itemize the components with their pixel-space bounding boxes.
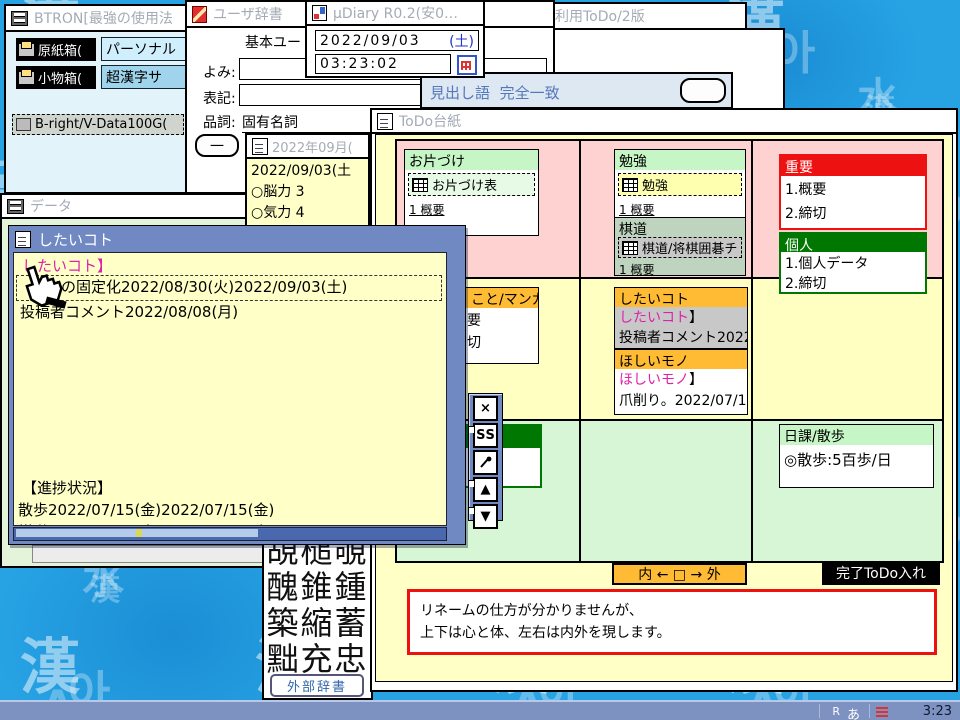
todo-box-okatazuke: お片づけ お片づけ表 1 概要: [404, 149, 539, 236]
paper-tray-icon: [18, 43, 35, 57]
genshibako-label: 原紙箱(: [38, 40, 82, 59]
todo-box-kido: 棋道 棋道/将棋囲碁チ 1 概要: [614, 217, 746, 276]
window-btron-title: BTRON[最強の使用法: [34, 8, 173, 28]
progress-heading: 【進捗状況】: [22, 477, 112, 498]
benkyo-header: 勉強: [615, 150, 745, 170]
okatazuke-header: お片づけ: [405, 150, 538, 170]
date-value: 2022/09/03: [320, 33, 421, 49]
window-data-title: データ: [30, 196, 72, 216]
save-icon[interactable]: SS: [473, 423, 498, 448]
headword-label: 見出し語: [430, 84, 490, 102]
udiary-icon: [312, 5, 327, 21]
shitai-cell-line2: 投稿者コメント2022: [619, 328, 743, 348]
menu-icon[interactable]: [876, 707, 888, 717]
shitai-selected-item[interactable]: ードの固定化2022/08/30(火)2022/09/03(土): [16, 275, 442, 301]
chokanji-label: 超漢字サ: [106, 67, 162, 87]
todo-box-shitai-koto: したいコト したいコト】 投稿者コメント2022: [614, 287, 748, 349]
scroll-down-icon[interactable]: ▼: [473, 504, 498, 529]
hyoki-label: 表記:: [203, 88, 236, 108]
weekday-value: (土): [449, 31, 474, 51]
scrollbar-thumb[interactable]: [142, 529, 258, 537]
shitai-side-toolbar: × SS ▲ ▼: [468, 393, 503, 521]
yomi-label: よみ:: [203, 62, 236, 82]
window-shitai-titlebar[interactable]: したいコト: [9, 226, 465, 252]
progress-line: 散歩2022/07/15(金)2022/07/15(金): [18, 499, 274, 520]
kojin-line: 1.個人データ: [785, 254, 921, 274]
kojin-header: 個人: [781, 234, 925, 252]
corner-mark: [468, 426, 474, 433]
red-book-icon: [192, 6, 207, 23]
cabinet-icon: [7, 199, 24, 214]
done-todo-button[interactable]: 完了ToDo入れ: [822, 561, 940, 585]
kido-header: 棋道: [615, 218, 745, 236]
window-todo-board-title: ToDo台紙: [399, 111, 461, 131]
sheet-icon: [622, 178, 638, 192]
external-dict-label: 外部辞書: [287, 676, 347, 695]
hoshii-line2: 爪削り。2022/07/17: [619, 391, 743, 412]
koto-manga-line: 切: [467, 332, 534, 354]
kido-item-label: 棋道/将棋囲碁チ: [642, 238, 737, 257]
time-field[interactable]: 03:23:02: [315, 54, 451, 74]
shitai-heading: したいコト】: [22, 255, 112, 276]
close-icon[interactable]: ×: [473, 396, 498, 421]
hoshii-header: ほしいモノ: [615, 350, 747, 369]
window-shitai-koto: したいコト したいコト】 ードの固定化2022/08/30(火)2022/09/…: [8, 225, 466, 545]
window-btron: BTRON[最強の使用法 原紙箱( パーソナル 小物箱( 超漢字サ B-righ…: [4, 4, 187, 194]
okatazuke-item[interactable]: お片づけ表: [408, 173, 535, 196]
progress-line: 棋道2022/07/15(金)2022/07/15(金): [18, 521, 274, 526]
match-mode-label: 完全一致: [500, 84, 560, 102]
grid-divider: [579, 141, 581, 561]
komonobako-label: 小物箱(: [38, 68, 82, 87]
ime-mode-indicator[interactable]: R: [832, 705, 840, 718]
hoshii-line1: ほしいモノ】: [619, 370, 743, 391]
juyo-line: 2.締切: [785, 202, 921, 226]
okatazuke-item-label: お片づけ表: [432, 175, 497, 194]
pin-icon[interactable]: [473, 450, 498, 475]
date-field[interactable]: 2022/09/03 (土): [315, 30, 479, 51]
shitai-horizontal-scrollbar[interactable]: [13, 527, 447, 541]
kido-item[interactable]: 棋道/将棋囲碁チ: [618, 237, 742, 258]
time-value: 03:23:02: [320, 56, 399, 72]
cabinet-icon: [11, 11, 28, 26]
document-icon: [15, 231, 31, 248]
sheet-icon: [412, 178, 428, 192]
done-todo-label: 完了ToDo入れ: [836, 563, 926, 583]
taskbar: R あ 3:23: [0, 700, 960, 720]
kido-sub[interactable]: 1 概要: [615, 259, 745, 276]
window-todo-board-titlebar[interactable]: ToDo台紙: [372, 110, 956, 134]
todo-box-nikka-sanpo: 日課/散歩 ◎散歩:5百歩/日: [779, 424, 934, 488]
ime-kana-indicator[interactable]: あ: [847, 704, 860, 720]
benkyo-item[interactable]: 勉強: [618, 173, 742, 196]
kojin-line: 2.締切: [785, 274, 921, 294]
document-icon: [252, 138, 268, 155]
diary-line: 2022/09/03(土: [251, 161, 364, 182]
ichi-button[interactable]: 一: [195, 134, 239, 157]
inner-outer-label: 内 ← □ → 外: [638, 564, 721, 584]
scroll-up-icon[interactable]: ▲: [473, 477, 498, 502]
desktop: 漢아A水漢漢아A水漢漢아A水漢漢아A水漢漢아A水漢漢아A水漢漢아A水漢漢아A水漢…: [0, 0, 960, 720]
inner-outer-button[interactable]: 内 ← □ → 外: [612, 563, 747, 585]
benkyo-item-label: 勉強: [642, 175, 668, 194]
clock: 3:23: [923, 704, 952, 719]
board-message-line: リネームの仕方が分かりませんが、: [420, 600, 924, 622]
hinshi-label: 品詞:: [203, 112, 236, 132]
taskbar-divider: [869, 704, 870, 718]
window-udiary-titlebar[interactable]: μDiary R0.2(安0…: [307, 2, 483, 26]
board-message-box: リネームの仕方が分かりませんが、 上下は心と体、左右は内外を現します。: [407, 589, 937, 655]
todo-box-kojin: 個人 1.個人データ 2.締切: [779, 232, 927, 294]
juyo-line: 1.概要: [785, 178, 921, 202]
search-button[interactable]: [680, 78, 726, 103]
shitai-cell-line1: したいコト】: [619, 308, 743, 328]
diary-line: ○脳力 3: [251, 182, 364, 203]
shitai-cell-header: したいコト: [615, 288, 747, 307]
window-month-diary-title: 2022年09月(: [272, 137, 353, 156]
search-bar-text: 見出し語 完全一致: [430, 82, 560, 103]
shitai-content: したいコト】 ードの固定化2022/08/30(火)2022/09/03(土) …: [13, 252, 447, 526]
juyo-header: 重要: [781, 156, 925, 176]
external-dict-button[interactable]: 外部辞書: [270, 674, 364, 697]
todo-box-hoshii-mono: ほしいモノ ほしいモノ】 爪削り。2022/07/17: [614, 349, 748, 415]
window-user-dict-title: ユーザ辞書: [213, 4, 283, 24]
window-month-diary-titlebar[interactable]: 2022年09月(: [247, 135, 368, 159]
chokanji-item[interactable]: 超漢字サ: [101, 65, 187, 89]
window-udiary: μDiary R0.2(安0… 2022/09/03 (土) 03:23:02: [305, 0, 485, 78]
nikka-line: ◎散歩:5百歩/日: [780, 445, 933, 472]
disk-icon: [16, 118, 31, 131]
todo-box-juyo: 重要 1.概要 2.締切: [779, 154, 927, 230]
corner-mark: [468, 507, 474, 514]
personal-label: パーソナル: [106, 39, 176, 59]
nikka-header: 日課/散歩: [780, 425, 933, 445]
small-box-icon: [18, 71, 35, 85]
window-month-diary: 2022年09月( 2022/09/03(土 ○脳力 3 ○気力 4: [245, 133, 370, 233]
window-udiary-title: μDiary R0.2(安0…: [333, 3, 458, 23]
ichi-button-label: 一: [210, 136, 224, 156]
sheet-icon: [622, 241, 638, 255]
bright-data-label: B-right/V-Data100G(: [35, 117, 167, 132]
calendar-grid-icon[interactable]: [457, 55, 477, 75]
koto-manga-line: 要: [467, 310, 534, 332]
document-icon: [377, 113, 393, 130]
okatazuke-sub[interactable]: 1 概要: [405, 199, 538, 220]
corner-mark: [468, 480, 474, 487]
window-shitai-title: したいコト: [38, 229, 113, 250]
board-message-line: 上下は心と体、左右は内外を現します。: [420, 622, 924, 644]
bright-data-item[interactable]: B-right/V-Data100G(: [12, 114, 184, 135]
grid-divider: [751, 141, 753, 561]
personal-item[interactable]: パーソナル: [101, 37, 187, 61]
user-dict-header: 基本ユー: [245, 32, 301, 52]
genshibako-button[interactable]: 原紙箱(: [16, 38, 96, 61]
taskbar-divider: [819, 704, 820, 718]
scrollbar-thumb[interactable]: [16, 529, 136, 537]
diary-line: ○気力 4: [251, 203, 364, 224]
shitai-comment: 投稿者コメント2022/08/08(月): [20, 301, 238, 322]
window-btron-titlebar[interactable]: BTRON[最強の使用法: [6, 6, 185, 32]
komonobako-button[interactable]: 小物箱(: [16, 66, 96, 89]
